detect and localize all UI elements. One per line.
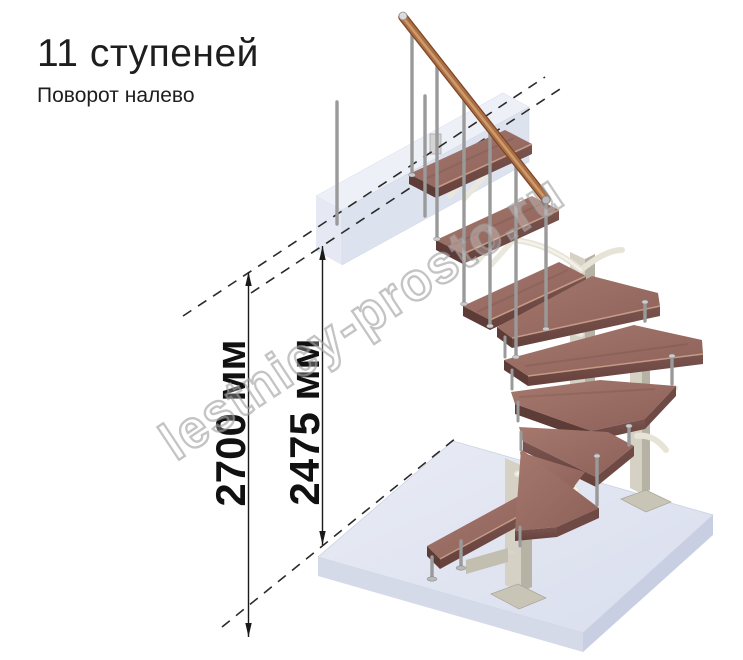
arrowhead-down [245,623,251,637]
page-title: 11 ступеней [37,34,259,75]
handrail-top-cap [399,12,407,20]
leg-foot [427,577,437,581]
staircase-diagram-page: 2700 мм 2475 мм lestnicy-prosto.ru 11 ст… [0,0,743,655]
leg-foot [456,566,466,570]
arrowhead-down [319,531,325,545]
title-block: 11 ступеней Поворот налево [37,34,259,108]
page-subtitle: Поворот налево [37,84,259,108]
